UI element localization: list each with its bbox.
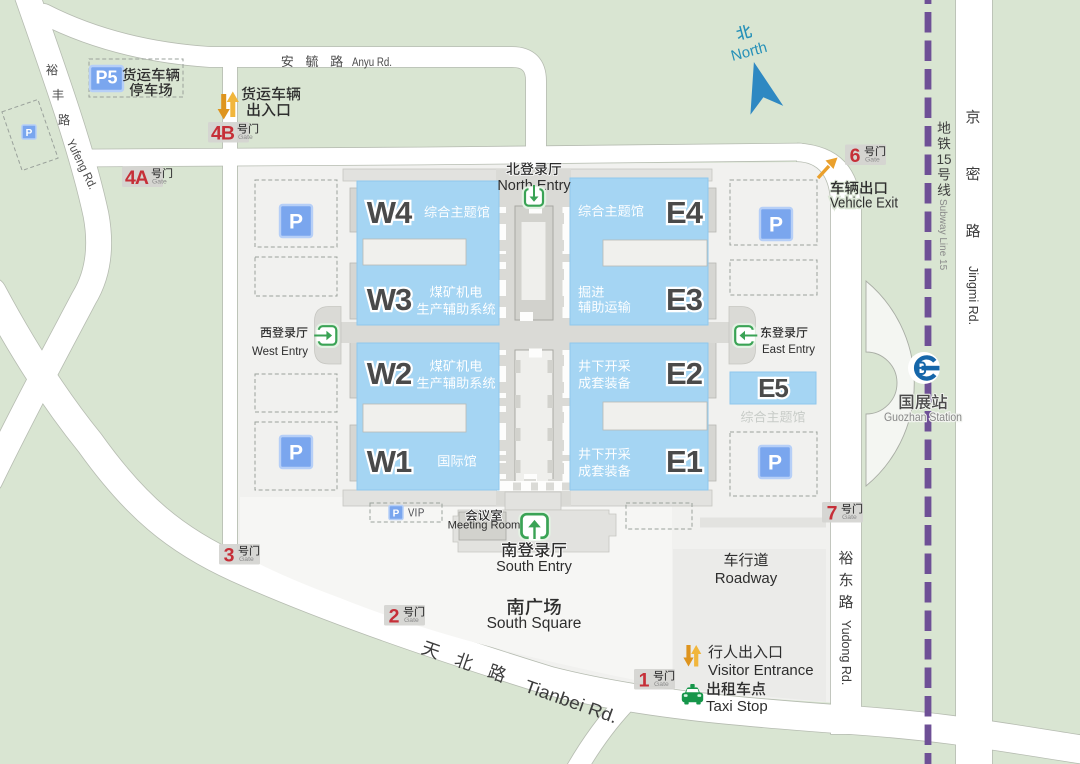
svg-text:W2: W2 [367,356,412,391]
svg-text:P: P [768,452,782,475]
svg-text:Jingmi Rd.: Jingmi Rd. [966,266,980,325]
svg-text:Visitor Entrance: Visitor Entrance [708,662,814,679]
svg-text:South Entry: South Entry [496,559,573,575]
svg-text:Anyu Rd.: Anyu Rd. [352,57,392,69]
svg-text:East Entry: East Entry [762,344,815,356]
svg-text:South Square: South Square [487,615,582,632]
svg-text:P5: P5 [95,68,117,88]
svg-text:P: P [289,442,303,465]
svg-text:P: P [26,128,33,139]
svg-text:Meeting Room: Meeting Room [448,520,521,532]
svg-text:P: P [769,214,783,237]
svg-text:W1: W1 [367,444,412,479]
svg-text:P: P [393,509,400,520]
svg-text:West Entry: West Entry [252,346,308,358]
svg-text:4A: 4A [125,167,149,189]
svg-text:Gate: Gate [865,157,880,164]
svg-text:W3: W3 [367,282,412,317]
svg-text:Gate: Gate [238,134,253,141]
svg-text:Gate: Gate [152,179,167,186]
svg-text:E3: E3 [666,282,703,317]
svg-text:Subway Line 15: Subway Line 15 [937,199,948,271]
svg-text:Vehicle Exit: Vehicle Exit [830,196,898,212]
svg-text:Taxi Stop: Taxi Stop [706,698,768,715]
svg-text:Gate: Gate [842,514,857,521]
svg-text:Guozhan Station: Guozhan Station [884,410,962,424]
svg-text:Gate: Gate [404,617,419,624]
svg-text:E5: E5 [758,373,788,403]
svg-text:E1: E1 [666,444,703,479]
svg-text:E2: E2 [666,356,702,391]
svg-text:2: 2 [389,605,400,627]
svg-text:Gate: Gate [654,681,669,688]
svg-text:P: P [289,211,303,234]
svg-text:W4: W4 [367,195,413,230]
svg-text:6: 6 [850,145,861,167]
svg-text:1: 1 [639,669,650,691]
svg-text:Gate: Gate [239,556,254,563]
svg-text:E4: E4 [666,195,704,230]
svg-text:3: 3 [224,544,235,566]
svg-text:4B: 4B [211,122,235,144]
svg-text:15: 15 [936,152,951,167]
svg-text:Yudong Rd.: Yudong Rd. [839,620,853,685]
svg-text:7: 7 [827,502,837,524]
svg-text:Roadway: Roadway [715,570,778,587]
